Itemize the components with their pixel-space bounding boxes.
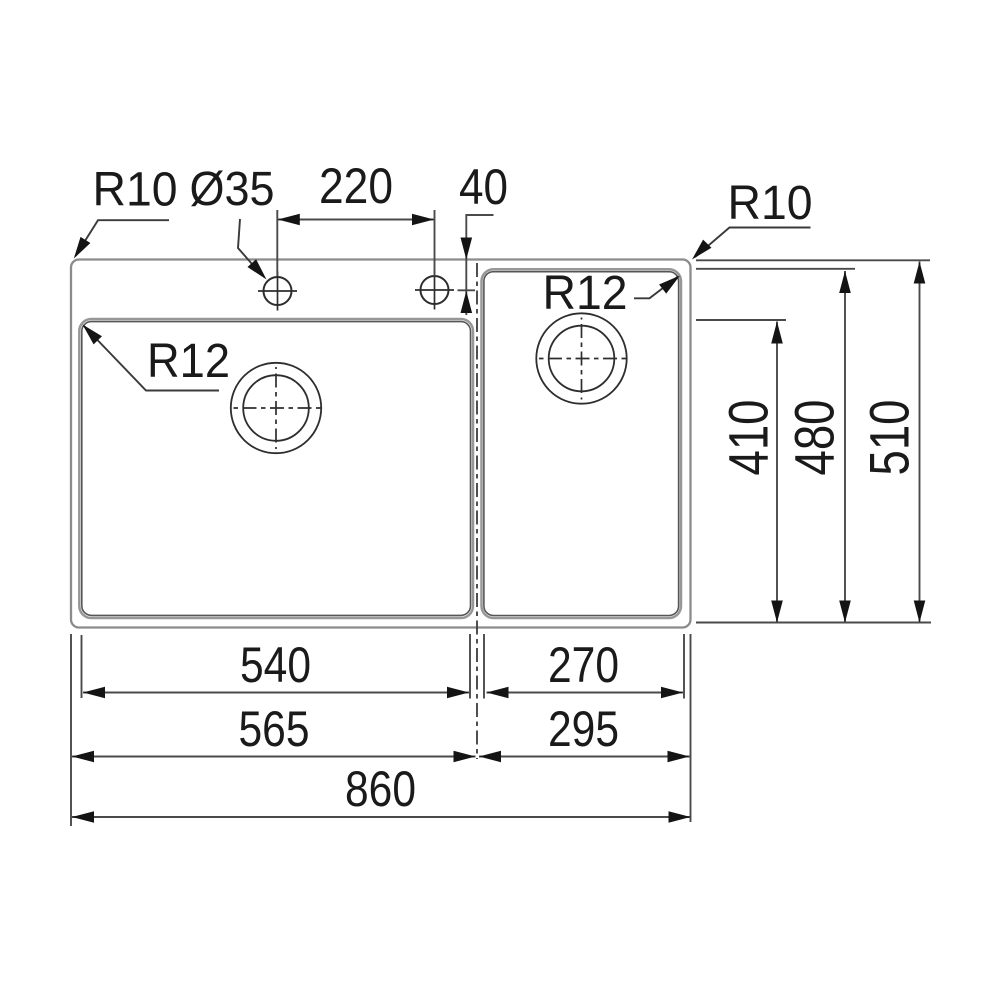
svg-text:270: 270 xyxy=(548,637,619,693)
svg-text:R10: R10 xyxy=(728,177,813,230)
svg-text:410: 410 xyxy=(717,400,780,476)
svg-text:R12: R12 xyxy=(147,335,230,388)
svg-text:Ø35: Ø35 xyxy=(190,163,275,216)
svg-text:R12: R12 xyxy=(543,267,628,320)
svg-text:R10: R10 xyxy=(93,164,178,217)
svg-text:295: 295 xyxy=(548,701,619,757)
svg-text:565: 565 xyxy=(239,701,310,757)
svg-text:540: 540 xyxy=(240,637,311,693)
svg-text:860: 860 xyxy=(345,761,416,817)
svg-text:480: 480 xyxy=(783,400,846,476)
svg-text:510: 510 xyxy=(858,400,921,476)
svg-text:40: 40 xyxy=(459,159,508,215)
svg-text:220: 220 xyxy=(319,158,393,214)
